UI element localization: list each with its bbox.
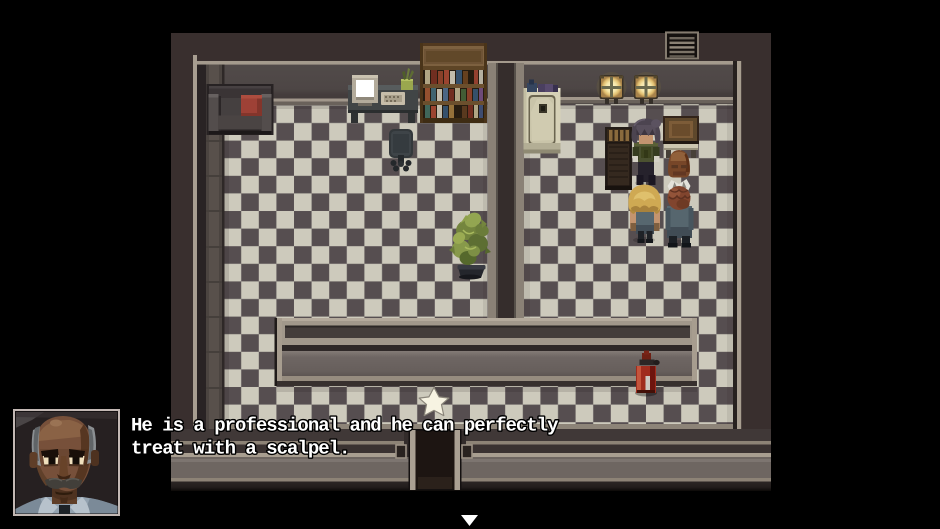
svg-text:He is a professional and he ca: He is a professional and he can perfectl… — [131, 415, 559, 437]
svg-text:treat with a scalpel.: treat with a scalpel. — [131, 438, 349, 460]
